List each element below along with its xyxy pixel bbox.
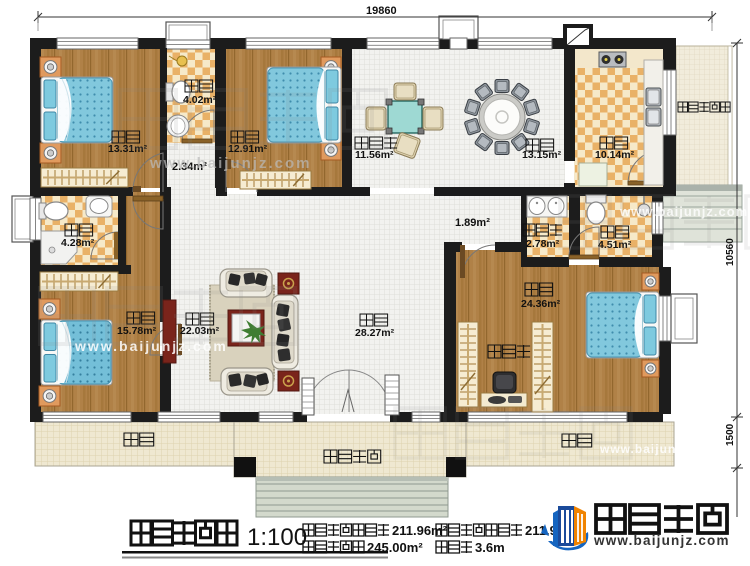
svg-text:245.00m²: 245.00m²	[367, 540, 423, 555]
svg-text:13.15m²: 13.15m²	[522, 149, 562, 161]
svg-text:www.baijunjz.com: www.baijunjz.com	[599, 442, 720, 456]
svg-text:1:100: 1:100	[247, 524, 307, 551]
svg-text:www.baijunjz.com: www.baijunjz.com	[593, 533, 730, 548]
svg-text:19860: 19860	[366, 5, 397, 17]
svg-text:11.56m²: 11.56m²	[355, 149, 394, 161]
svg-text:28.27m²: 28.27m²	[355, 327, 395, 339]
svg-text:www.baijunjz.com: www.baijunjz.com	[149, 155, 311, 172]
svg-text:24.36m²: 24.36m²	[521, 298, 561, 310]
svg-text:10560: 10560	[725, 238, 736, 266]
svg-text:211.9: 211.9	[525, 523, 557, 538]
svg-text:4.28m²: 4.28m²	[61, 237, 95, 249]
svg-text:10.14m²: 10.14m²	[595, 149, 635, 161]
svg-text:www.baijunjz.com: www.baijunjz.com	[619, 204, 748, 219]
svg-text:1500: 1500	[725, 423, 736, 446]
svg-text:www.baijunjz.com: www.baijunjz.com	[74, 338, 228, 354]
svg-text:3.6m: 3.6m	[475, 540, 505, 555]
svg-text:2.78m²: 2.78m²	[526, 238, 560, 250]
svg-text:1.89m²: 1.89m²	[455, 217, 490, 229]
